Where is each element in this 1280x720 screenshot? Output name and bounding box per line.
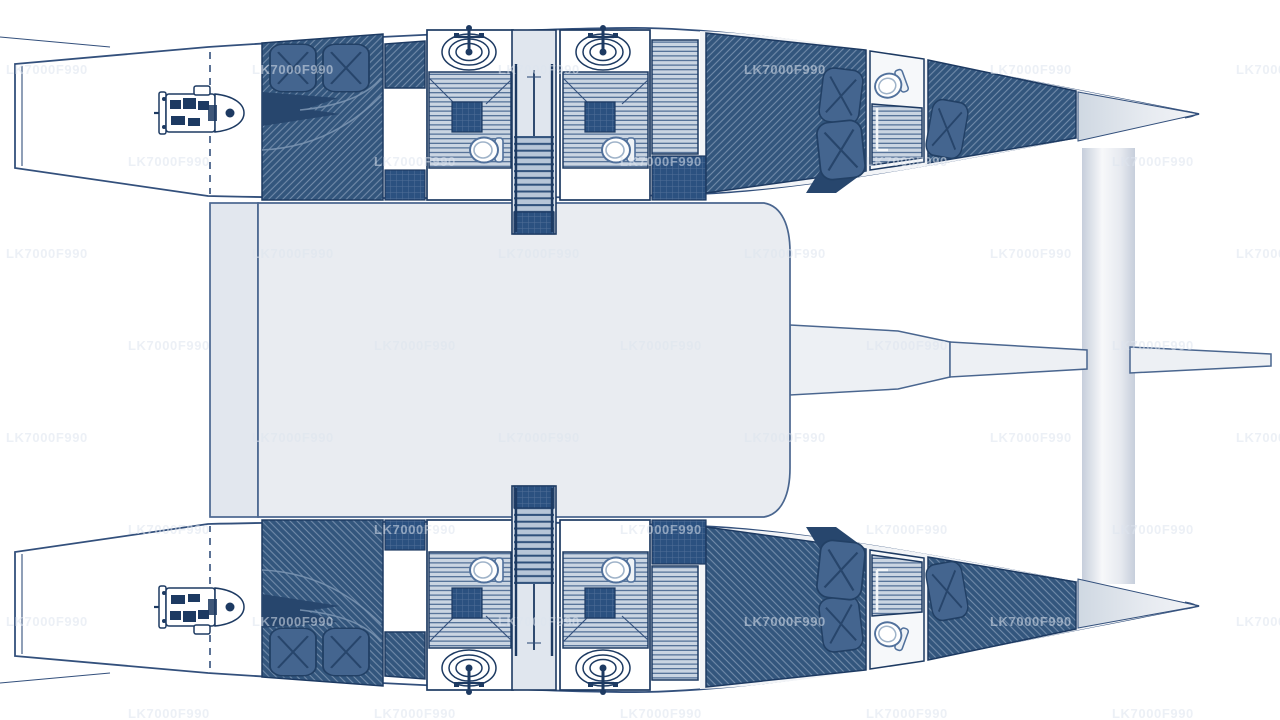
watermark-overlay xyxy=(0,0,1280,720)
deck-plan-page: LK7000F990 LK7000F990 xyxy=(0,0,1280,720)
deck-plan-canvas: LK7000F990 LK7000F990 xyxy=(0,0,1280,720)
